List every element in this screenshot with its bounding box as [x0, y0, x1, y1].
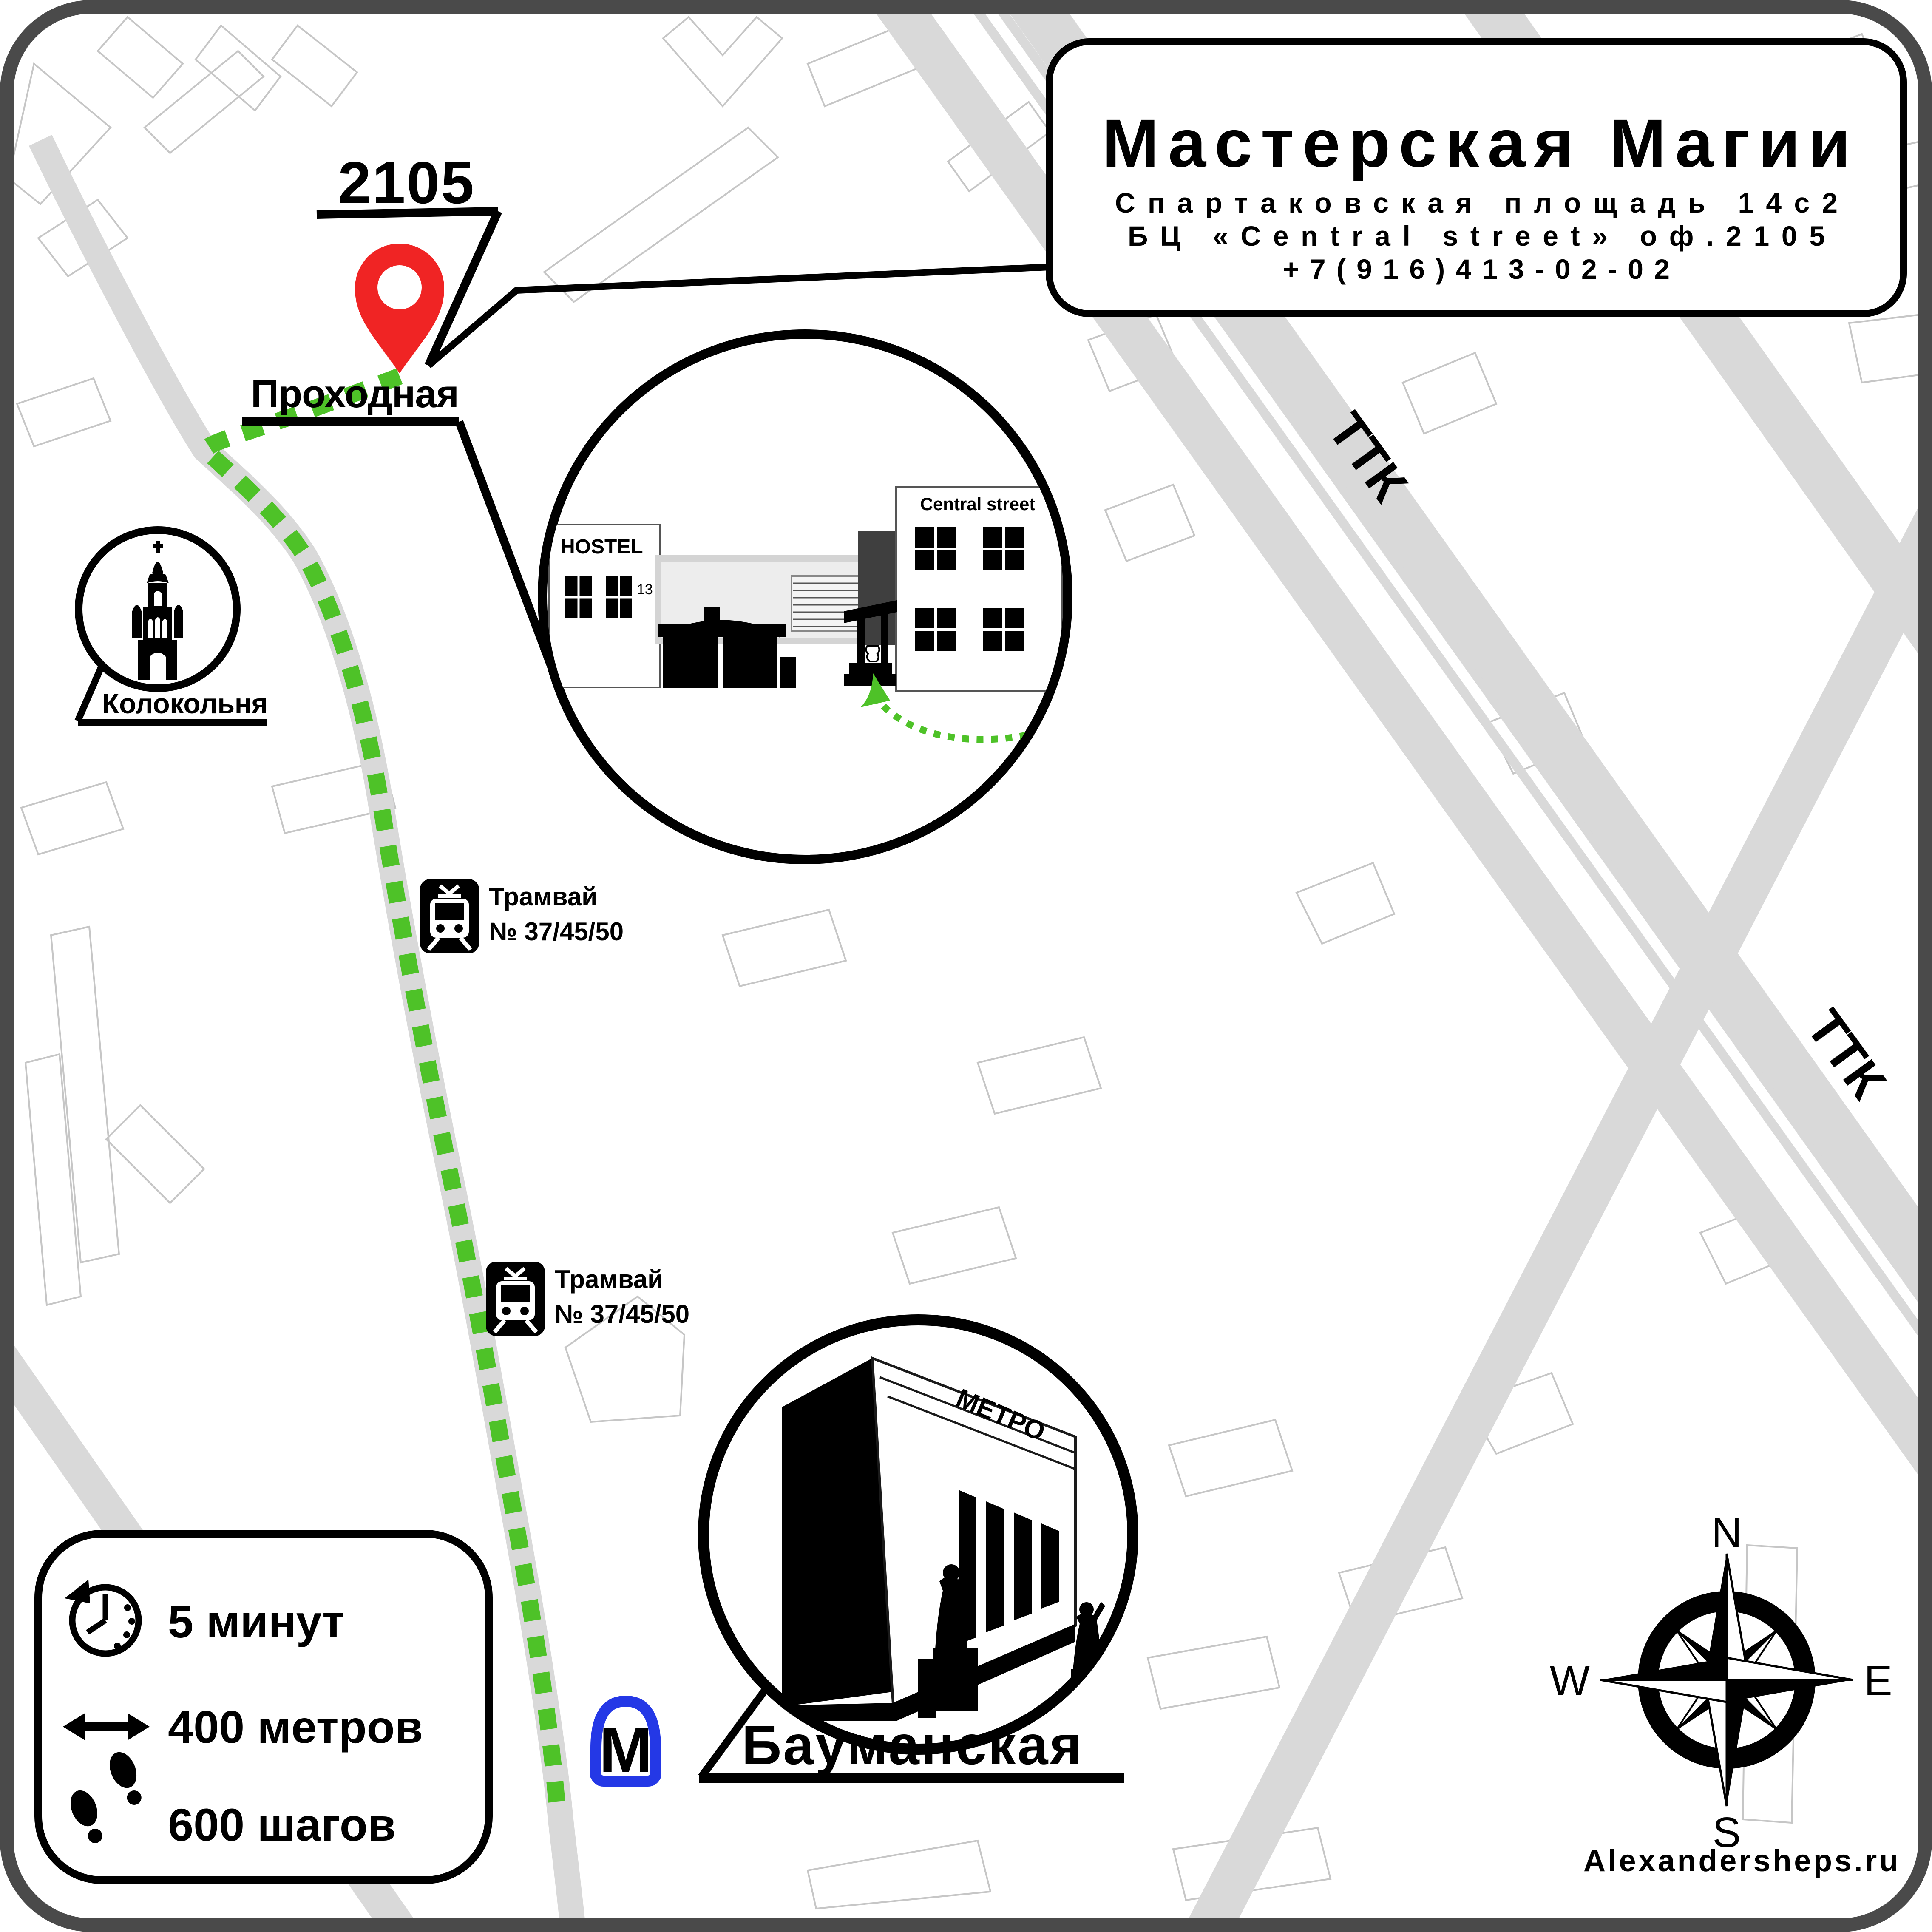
entrance-label: Проходная — [251, 372, 459, 416]
hostel-label: HOSTEL — [560, 536, 643, 558]
website-link: Alexandersheps.ru — [1583, 1844, 1898, 1878]
stats-box: 5 минут 400 метров 600 шагов — [38, 1534, 489, 1880]
hostel-window-1 — [565, 576, 592, 618]
garage-door — [792, 576, 863, 631]
central-street-label: Central street — [920, 494, 1036, 514]
bell-tower-label: Колокольня — [102, 688, 268, 719]
hostel-building: HOSTEL 13 — [549, 525, 660, 687]
gate-left-door — [663, 637, 718, 688]
hostel-window-2 — [606, 576, 632, 618]
courtyard-inset: HOSTEL 13 — [542, 334, 1068, 860]
route-map: ТТК ТТК Колокольня — [0, 0, 1932, 1932]
metro-logo-letter: М — [599, 1714, 653, 1785]
tram-icon — [420, 879, 479, 953]
hostel-number: 13 — [637, 582, 653, 598]
metro-station-label: Бауманская — [742, 1714, 1082, 1776]
company-title: Мастерская Магии — [1102, 105, 1850, 181]
tram-stop-2-name: Трамвай — [555, 1265, 663, 1294]
walk-time-value: 5 минут — [168, 1596, 345, 1647]
tram-stop-2-routes: № 37/45/50 — [555, 1300, 689, 1328]
compass-west-label: W — [1550, 1657, 1590, 1705]
steps-value: 600 шагов — [168, 1799, 396, 1850]
tram-stop-1-routes: № 37/45/50 — [489, 917, 624, 946]
compass-east-label: E — [1864, 1657, 1892, 1705]
metro-logo: М — [596, 1701, 655, 1785]
distance-value: 400 метров — [168, 1701, 423, 1753]
tram-stop-1-name: Трамвай — [489, 882, 597, 911]
compass-north-label: N — [1711, 1509, 1742, 1557]
gate-right-door — [723, 637, 777, 688]
info-box: Мастерская Магии Спартаковская площадь 1… — [1049, 42, 1904, 314]
tram-icon — [486, 1262, 545, 1336]
urn-decoration — [866, 646, 879, 661]
